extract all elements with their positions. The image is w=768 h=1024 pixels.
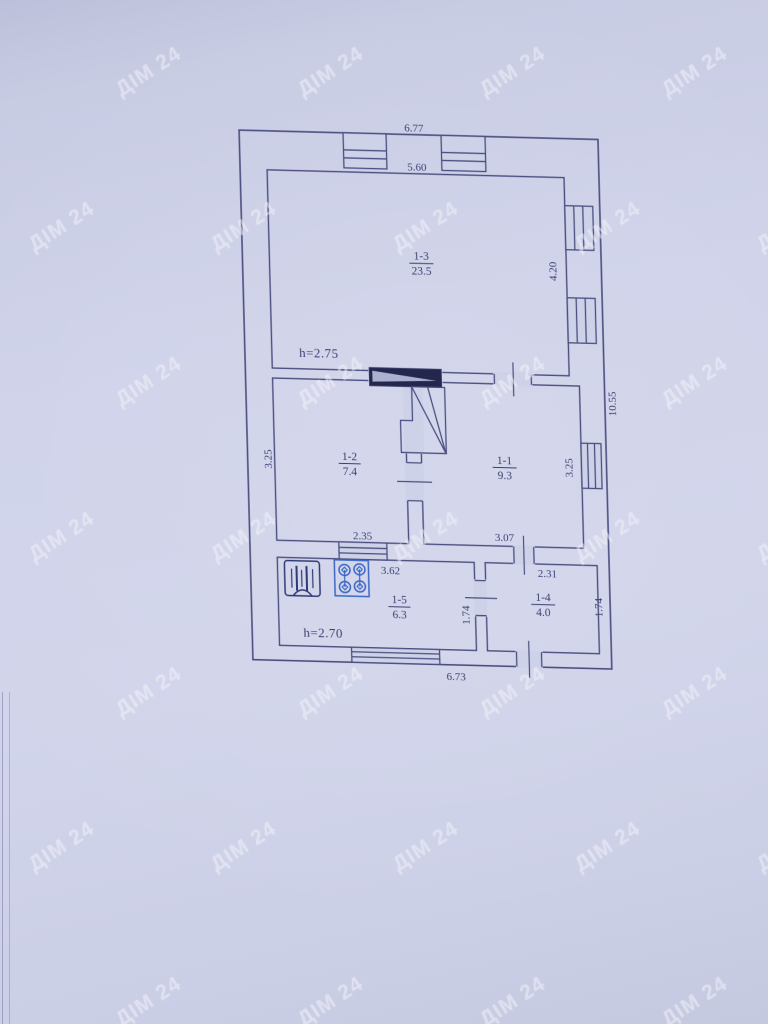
fraction-bar xyxy=(339,463,361,464)
window-front-left xyxy=(343,133,387,169)
dim-overall-top: 6.77 xyxy=(404,122,424,135)
watermark-text: ДІМ 24 xyxy=(657,42,732,102)
heater-icon xyxy=(284,560,320,596)
room-id: 1-5 xyxy=(391,594,407,606)
door-tick xyxy=(465,598,497,599)
dim-room-1-2-width: 2.35 xyxy=(353,530,373,543)
dim-overall-bottom: 6.73 xyxy=(446,671,466,684)
watermark-text: ДІМ 24 xyxy=(475,42,550,102)
walls xyxy=(239,130,612,669)
ceiling-height-main: h=2.75 xyxy=(299,345,339,361)
room-label-1-2: 1-2 7.4 xyxy=(338,451,361,479)
watermark-text: ДІМ 24 xyxy=(111,352,186,412)
stove-icon xyxy=(334,560,369,597)
room-area: 6.3 xyxy=(392,609,407,621)
dim-room-1-1-width: 3.07 xyxy=(495,532,515,545)
ceiling-height-annex: h=2.70 xyxy=(303,625,343,641)
watermark-text: ДІМ 24 xyxy=(657,352,732,412)
photo-background: { "watermark": { "text": "ДІМ 24" }, "pl… xyxy=(0,0,768,1024)
window-right-upper xyxy=(565,206,594,251)
floor-plan-drawing: 6.77 5.60 1-3 23.5 4.20 10.55 h=2.75 3.2… xyxy=(226,117,661,709)
room-area: 4.0 xyxy=(536,607,551,619)
dim-room-1-5-depth: 1.74 xyxy=(460,605,473,625)
door-tick xyxy=(529,641,530,678)
dim-room-1-4-width: 2.31 xyxy=(538,568,558,581)
watermark-text: ДІМ 24 xyxy=(111,972,186,1024)
watermark-text: ДІМ 24 xyxy=(111,42,186,102)
dim-room-1-5-width: 3.62 xyxy=(381,565,401,578)
door-tick xyxy=(523,536,524,575)
dim-room-1-3-width: 5.60 xyxy=(407,161,427,174)
watermark-text: ДІМ 24 xyxy=(0,42,4,102)
room-1-2-walls xyxy=(273,378,409,544)
watermark-text: ДІМ 24 xyxy=(293,972,368,1024)
door-1-3-to-1-1 xyxy=(493,362,533,397)
windows xyxy=(328,132,607,668)
outer-wall xyxy=(239,130,612,669)
room-label-1-3: 1-3 23.5 xyxy=(409,251,434,279)
dim-room-1-1-depth: 3.25 xyxy=(563,458,576,478)
window-kitchen-bottom xyxy=(352,647,440,664)
photo-page-edge xyxy=(2,692,10,1024)
labels: 6.77 5.60 1-3 23.5 4.20 10.55 h=2.75 3.2… xyxy=(254,118,627,687)
watermark-text: ДІМ 24 xyxy=(0,662,4,722)
furnace-diagonal xyxy=(428,387,446,453)
dim-room-1-4-depth: 1.74 xyxy=(593,597,606,617)
fraction-bar xyxy=(388,607,410,608)
chimney xyxy=(368,367,442,389)
watermark-text: ДІМ 24 xyxy=(752,197,768,257)
door-tick xyxy=(397,481,432,482)
window-right-lower xyxy=(567,298,596,344)
watermark-text: ДІМ 24 xyxy=(570,817,645,877)
watermark-text: ДІМ 24 xyxy=(388,817,463,877)
watermark-text: ДІМ 24 xyxy=(752,507,768,567)
room-label-1-1: 1-1 9.3 xyxy=(492,455,517,483)
watermark-text: ДІМ 24 xyxy=(24,817,99,877)
watermark-text: ДІМ 24 xyxy=(293,42,368,102)
dim-overall-right: 10.55 xyxy=(607,391,620,417)
room-label-1-4: 1-4 4.0 xyxy=(531,592,556,620)
door-1-1-to-1-4 xyxy=(512,535,535,575)
door-exterior-1-4 xyxy=(515,640,543,678)
watermark-text: ДІМ 24 xyxy=(206,817,281,877)
watermark-text: ДІМ 24 xyxy=(0,352,4,412)
fraction-bar xyxy=(409,263,433,264)
wall-erase xyxy=(403,383,425,454)
watermark-text: ДІМ 24 xyxy=(657,662,732,722)
watermark-text: ДІМ 24 xyxy=(752,817,768,877)
watermark-text: ДІМ 24 xyxy=(657,972,732,1024)
watermark-text: ДІМ 24 xyxy=(475,972,550,1024)
watermark-text: ДІМ 24 xyxy=(0,972,4,1024)
door-tick xyxy=(513,362,514,396)
watermark-text: ДІМ 24 xyxy=(24,197,99,257)
window-front-right xyxy=(441,135,486,171)
door-1-2-to-1-1 xyxy=(397,462,433,501)
watermark-text: ДІМ 24 xyxy=(24,507,99,567)
window-room-1-1 xyxy=(581,443,602,489)
room-id: 1-2 xyxy=(342,451,358,463)
room-area: 7.4 xyxy=(343,466,358,478)
opening-1-2-to-1-5 xyxy=(339,542,387,560)
dim-room-1-3-depth: 4.20 xyxy=(547,261,560,281)
watermark-text: ДІМ 24 xyxy=(111,662,186,722)
room-id: 1-3 xyxy=(413,251,429,263)
fraction-bar xyxy=(531,604,555,605)
room-id: 1-1 xyxy=(497,455,513,467)
room-area: 23.5 xyxy=(411,266,432,279)
room-label-1-5: 1-5 6.3 xyxy=(388,594,411,622)
dim-room-1-2-depth: 3.25 xyxy=(262,449,275,469)
room-area: 9.3 xyxy=(498,470,513,482)
floor-plan: 6.77 5.60 1-3 23.5 4.20 10.55 h=2.75 3.2… xyxy=(226,117,661,709)
fraction-bar xyxy=(493,467,517,468)
room-id: 1-4 xyxy=(535,592,551,604)
